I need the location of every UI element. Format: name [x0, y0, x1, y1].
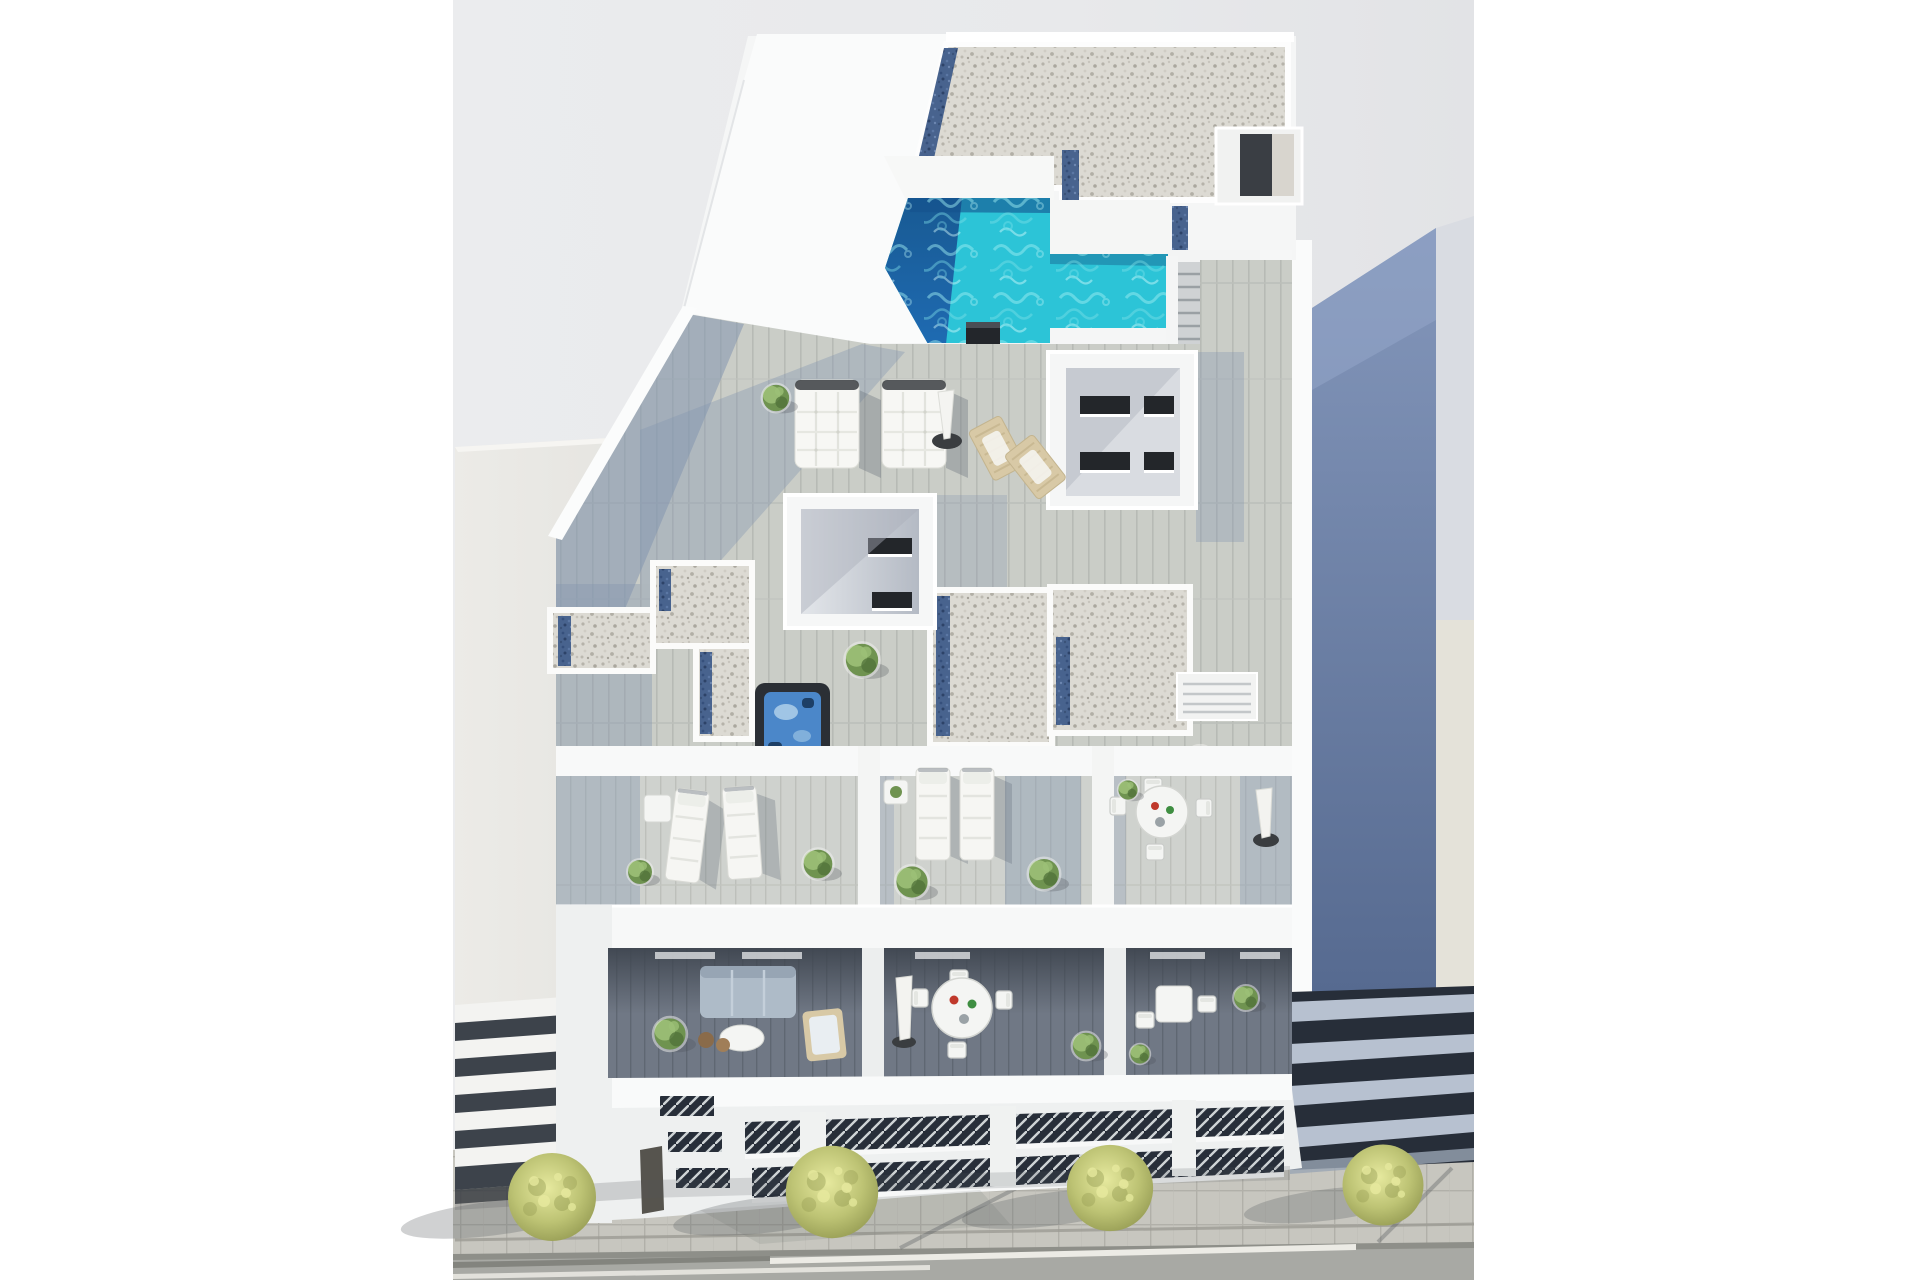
rooftop-ac-unit: [1177, 673, 1257, 720]
table-setting: [1151, 802, 1159, 810]
balcony-lounge-chair: [802, 1008, 847, 1062]
right-building-side-lower: [1436, 620, 1474, 995]
light-well-shaft-2: [1048, 352, 1196, 508]
open-door: [1240, 134, 1272, 196]
terrace-partition: [858, 746, 880, 906]
shaft-window: [872, 592, 912, 608]
deck-shadow: [1196, 352, 1244, 542]
double-sun-lounger: [882, 380, 968, 478]
shaft-window: [1144, 396, 1174, 414]
pool-coping: [884, 156, 1054, 200]
architectural-render: Aerial 3D architectural rendering of a m…: [0, 0, 1920, 1280]
side-table: [644, 795, 671, 822]
gravel-drain-strip: [1062, 150, 1079, 200]
right-building-edge-parapet: [1292, 240, 1312, 992]
table-setting: [1166, 806, 1174, 814]
facade-pier: [1172, 1100, 1196, 1176]
terrace-front-parapet: [556, 906, 1292, 948]
table-setting: [959, 1014, 969, 1024]
table-setting: [968, 1000, 977, 1009]
table-setting: [1155, 817, 1165, 827]
gravel-drain-strip: [1172, 206, 1188, 254]
balcony-partition: [862, 948, 884, 1078]
render-canvas: Aerial 3D architectural rendering of a m…: [0, 0, 1920, 1280]
roof-access-bulkhead: [1216, 128, 1302, 204]
balcony-partition: [1104, 948, 1126, 1078]
terrace-shadow: [556, 776, 640, 906]
shaft-window: [1080, 396, 1130, 414]
table-setting: [950, 996, 959, 1005]
side-table-round: [716, 1038, 730, 1052]
roof-parapet-top: [946, 32, 1294, 42]
round-dining-table: [932, 978, 992, 1038]
front-wing-terraces: [556, 746, 1292, 948]
balcony-door-frames: [655, 952, 1280, 959]
jacuzzi-seat: [802, 698, 814, 708]
side-table-round: [698, 1032, 714, 1048]
shaft-window: [1080, 452, 1130, 470]
shaft-window: [1144, 452, 1174, 470]
side-table-with-plant: [884, 780, 908, 804]
bistro-table: [1156, 986, 1192, 1022]
pool-coping: [1050, 200, 1170, 256]
terrace-partition: [1092, 746, 1114, 906]
light-well-shaft-1: [785, 495, 935, 628]
sun-lounger: [722, 784, 781, 883]
sun-lounger: [960, 768, 1012, 864]
right-building-side-upper: [1436, 216, 1474, 620]
double-sun-lounger: [795, 380, 881, 478]
